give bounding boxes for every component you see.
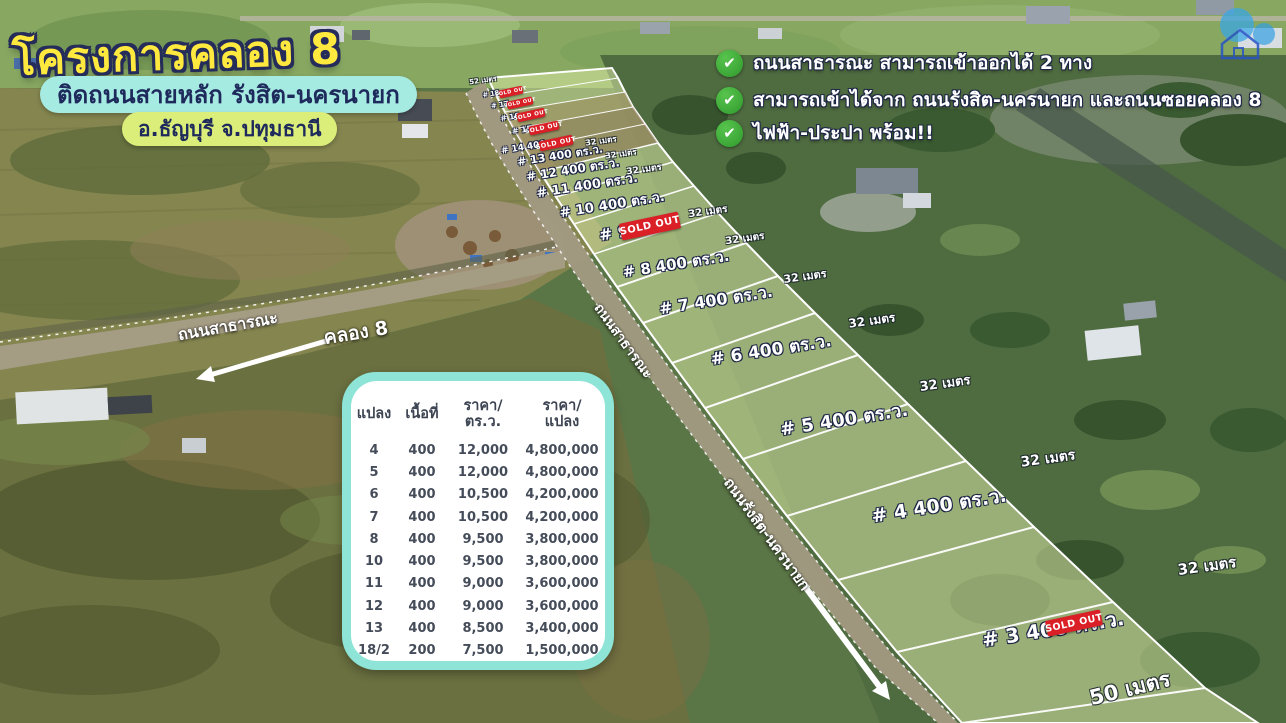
check-icon: ✔ <box>716 120 743 147</box>
table-row: 134008,5003,400,000 <box>351 617 605 639</box>
feature-item: ✔ สามารถเข้าได้จาก ถนนรังสิต-นครนายก และ… <box>716 85 1262 115</box>
table-row: 114009,0003,600,000 <box>351 573 605 595</box>
price-table-header: แปลง เนื้อที่ ราคา/ตร.ว. ราคา/แปลง <box>351 393 605 437</box>
price-table-card: แปลง เนื้อที่ ราคา/ตร.ว. ราคา/แปลง 44001… <box>342 372 614 670</box>
table-row: 124009,0003,600,000 <box>351 595 605 617</box>
feature-item: ✔ ไฟฟ้า-ประปา พร้อม!! <box>716 118 934 148</box>
feature-text: ไฟฟ้า-ประปา พร้อม!! <box>753 118 934 148</box>
warehouse-roof <box>15 388 109 425</box>
table-row: 104009,5003,800,000 <box>351 550 605 572</box>
poster-canvas: โครงการคลอง 8 ติดถนนสายหลัก รังสิต-นครนา… <box>0 0 1286 723</box>
feature-text: ถนนสาธารณะ สามารถเข้าออกได้ 2 ทาง <box>753 48 1092 78</box>
project-location: อ.ธัญบุรี จ.ปทุมธานี <box>122 112 337 146</box>
table-row: 540012,0004,800,000 <box>351 461 605 483</box>
feature-text: สามารถเข้าได้จาก ถนนรังสิต-นครนายก และถน… <box>753 85 1262 115</box>
col-header-price-per-wah: ราคา/ตร.ว. <box>447 399 519 430</box>
house-roof <box>1085 325 1142 360</box>
table-row: 18/22007,5001,500,000 <box>351 640 605 662</box>
feature-item: ✔ ถนนสาธารณะ สามารถเข้าออกได้ 2 ทาง <box>716 48 1092 78</box>
col-header-area: เนื้อที่ <box>397 407 447 423</box>
table-row: 740010,5004,200,000 <box>351 506 605 528</box>
table-row: 440012,0004,800,000 <box>351 439 605 461</box>
table-row: 84009,5003,800,000 <box>351 528 605 550</box>
col-header-price-per-plot: ราคา/แปลง <box>519 399 605 430</box>
project-subtitle: ติดถนนสายหลัก รังสิต-นครนายก <box>40 76 417 113</box>
check-icon: ✔ <box>716 50 743 77</box>
check-icon: ✔ <box>716 87 743 114</box>
price-table: แปลง เนื้อที่ ราคา/ตร.ว. ราคา/แปลง 44001… <box>351 381 605 661</box>
table-row: 640010,5004,200,000 <box>351 484 605 506</box>
col-header-plot: แปลง <box>351 407 397 423</box>
